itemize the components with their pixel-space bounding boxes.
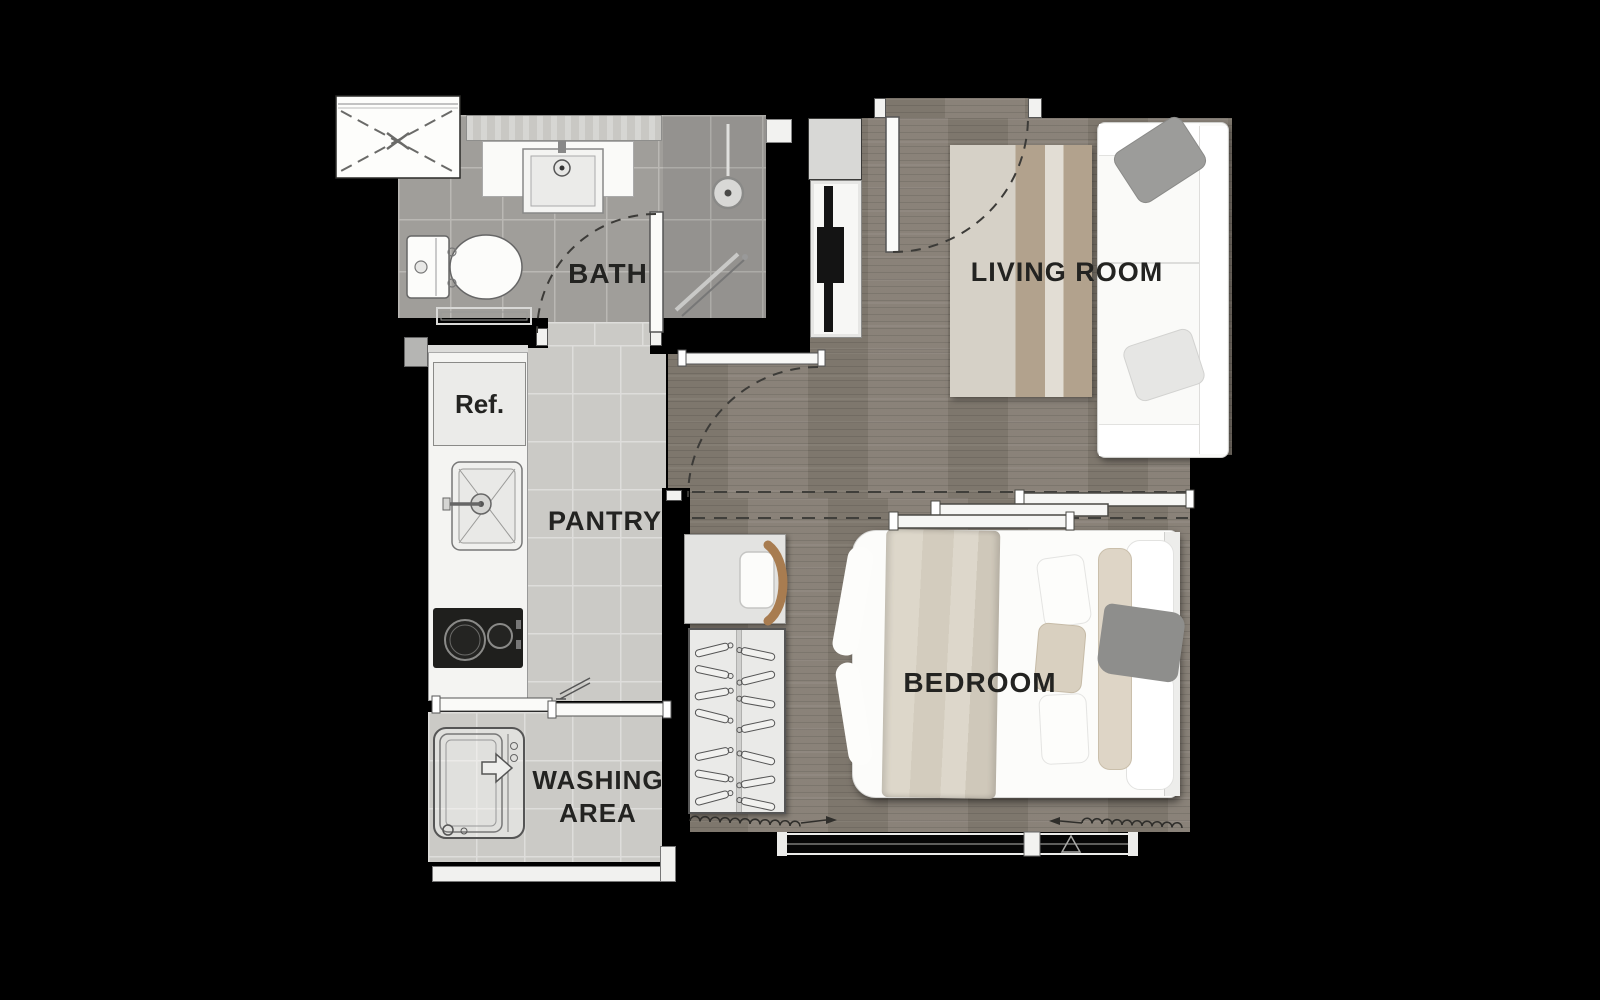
toilet-icon <box>407 235 522 299</box>
line-art-overlay <box>0 0 1600 1000</box>
desk-chair-icon <box>740 545 783 621</box>
towel-rail-icon <box>437 308 531 324</box>
stove-burners-icon <box>445 620 521 660</box>
hall-wall-track <box>678 350 825 366</box>
washing-sliding-door <box>432 696 671 718</box>
curtain-symbol-right <box>1049 817 1182 828</box>
wardrobe-hangers <box>695 641 776 811</box>
hall-door-swing-arc <box>688 367 818 497</box>
room-label-bath: BATH <box>528 256 688 291</box>
room-label-living-room: LIVING ROOM <box>957 256 1177 290</box>
room-label-washing-area: WASHING AREA <box>518 764 678 829</box>
floor-plan: Ref. <box>0 0 1600 1000</box>
entrance-door-swing-arc <box>893 117 1028 252</box>
kitchen-sink-icon <box>443 462 522 550</box>
ac-ledge-icon <box>336 96 460 178</box>
washbasin-icon <box>523 141 603 213</box>
washing-machine-icon <box>434 728 524 838</box>
sliding-partition <box>692 490 1194 530</box>
room-label-bedroom: BEDROOM <box>880 665 1080 700</box>
room-label-pantry: PANTRY <box>525 505 685 539</box>
entrance-door-leaf <box>886 117 899 252</box>
bedroom-window <box>777 832 1138 856</box>
pantry-door-mark <box>556 678 590 699</box>
curtain-symbol-left <box>690 816 837 827</box>
